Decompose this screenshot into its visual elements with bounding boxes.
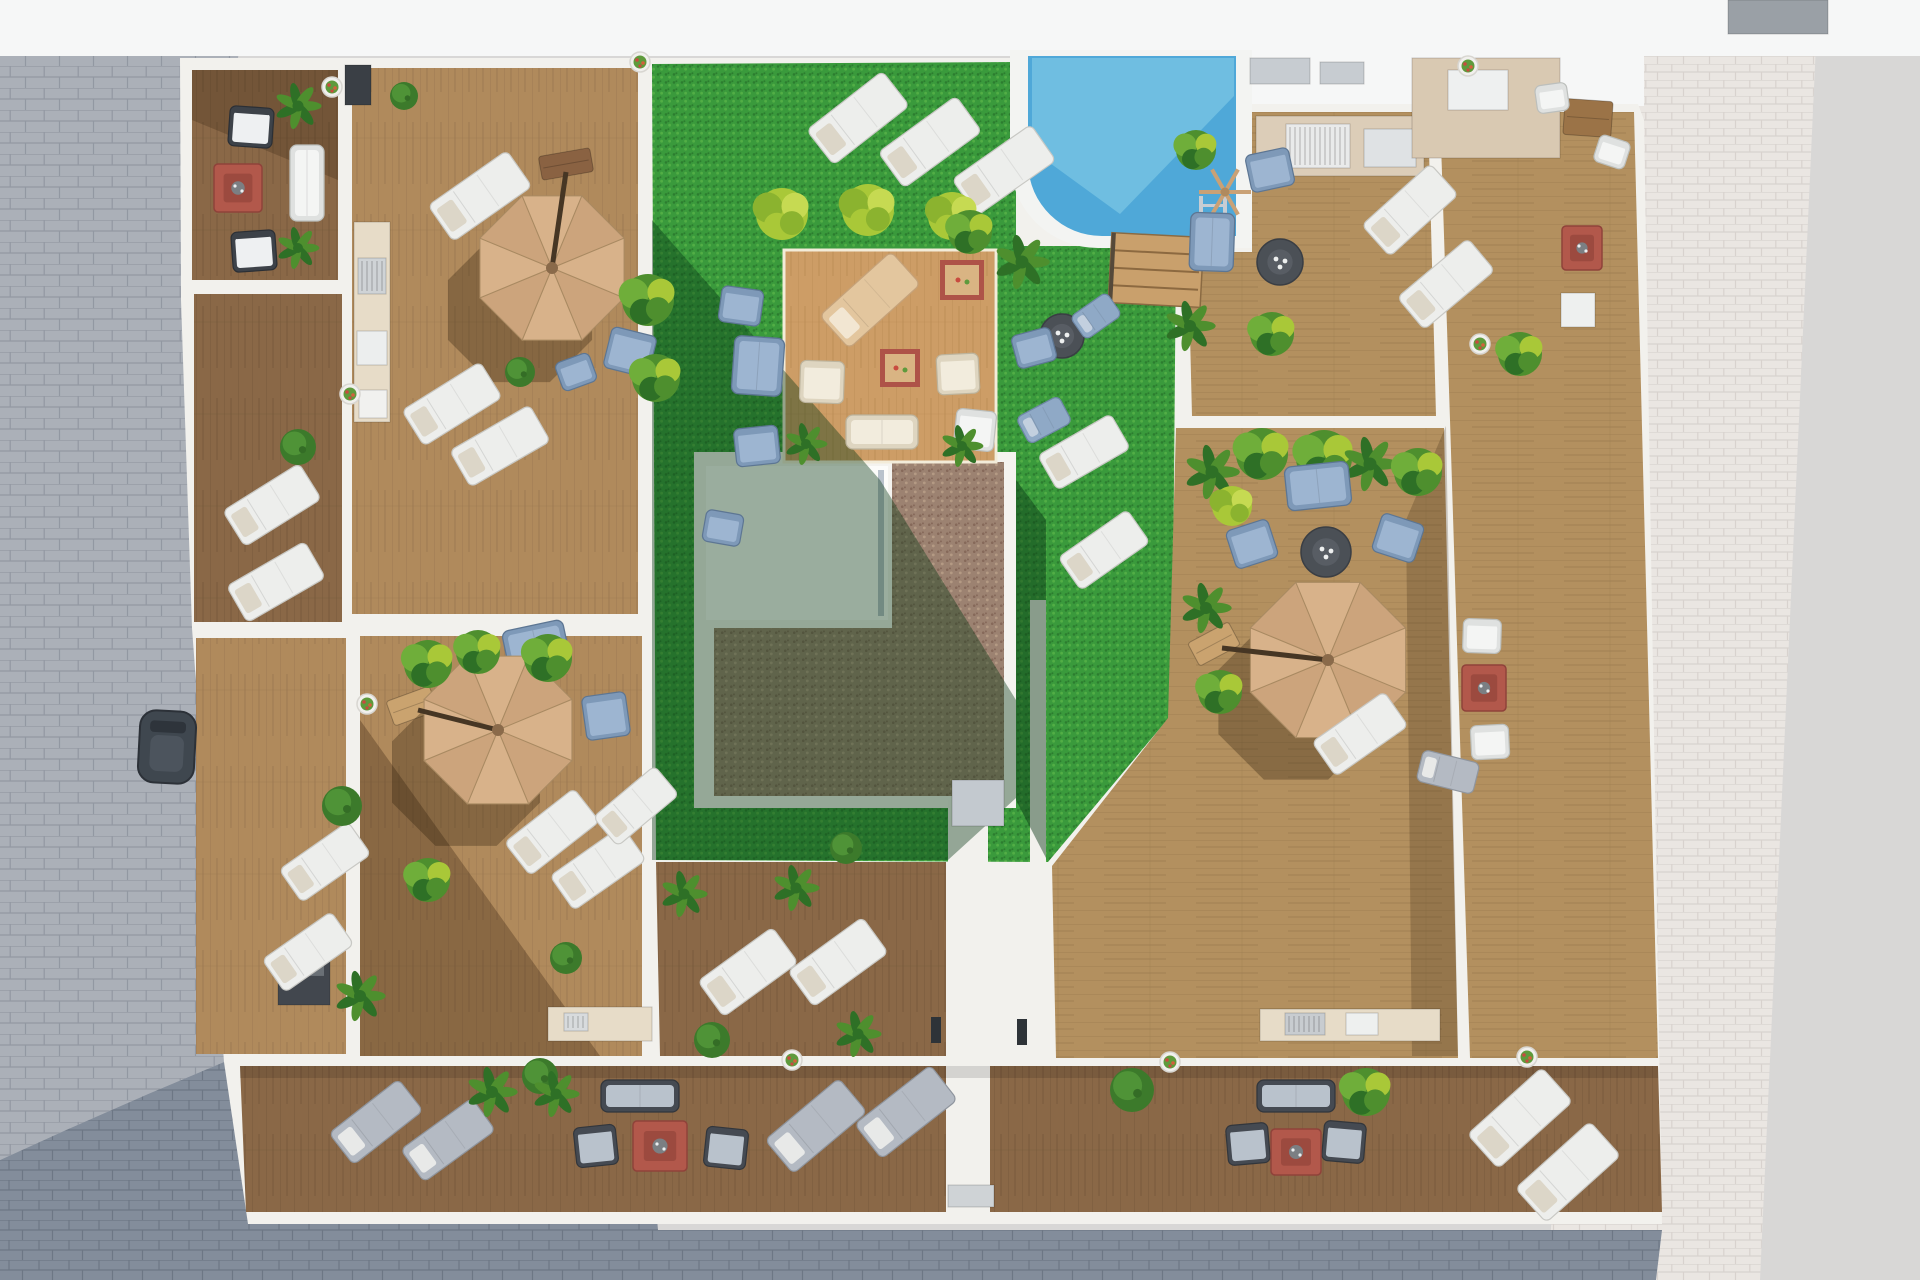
wicker-armchair — [718, 285, 765, 326]
armchair — [581, 691, 631, 741]
balcony-sink — [564, 1013, 588, 1031]
fire-table — [214, 164, 262, 212]
fire-table — [1271, 1129, 1321, 1175]
parked-car — [137, 710, 197, 785]
lounge-chair — [1470, 724, 1510, 760]
armchair — [1321, 1120, 1366, 1164]
dining-table — [1563, 98, 1613, 137]
wicker-armchair — [702, 509, 745, 547]
corner-roof-box — [1448, 70, 1508, 110]
counter-box — [359, 390, 387, 418]
aerial-render-stage: Aerial 3D render — rooftop terraces with… — [0, 0, 1920, 1280]
armchair — [703, 1126, 749, 1170]
counter-sink — [357, 331, 387, 365]
lounge-chair — [799, 360, 844, 404]
flower-pot — [1458, 56, 1478, 76]
flower-pot — [782, 1050, 802, 1070]
flower-pot — [1160, 1052, 1180, 1072]
boxwood-ball — [1110, 1068, 1154, 1112]
armchair — [231, 230, 278, 273]
coffee-table — [880, 349, 920, 387]
skylight — [1286, 124, 1350, 168]
fire-table — [1462, 665, 1506, 711]
core-shadow-on-grass — [1016, 480, 1046, 858]
flower-pot — [340, 384, 360, 404]
roof-vent — [1320, 62, 1364, 84]
sofa — [1284, 461, 1352, 511]
fire-table — [1562, 226, 1602, 270]
boxwood-ball — [505, 357, 535, 387]
grill-unit — [345, 65, 371, 105]
flower-pot — [630, 52, 650, 72]
neighbor-roof — [1728, 0, 1828, 34]
wicker-sofa — [731, 335, 785, 396]
sofa — [1257, 1080, 1335, 1112]
boxwood-ball — [550, 942, 582, 974]
counter-appliance — [358, 258, 386, 294]
scene-svg — [0, 0, 1920, 1280]
sofa — [846, 415, 918, 449]
lounge-chair — [1462, 618, 1501, 653]
boxwood-ball — [694, 1022, 730, 1058]
fire-bowl-table — [1301, 527, 1351, 577]
wicker-armchair — [733, 425, 781, 467]
side-table — [940, 260, 984, 300]
lounge-chair — [936, 353, 980, 395]
balcony-step — [948, 1185, 994, 1207]
balcony-grill — [1285, 1013, 1325, 1035]
roof-vent — [1250, 58, 1310, 84]
armchair — [1245, 147, 1296, 193]
flower-pot — [1517, 1047, 1537, 1067]
armchair — [1225, 1122, 1270, 1166]
balcony-box — [1346, 1013, 1378, 1035]
balcony-wall-shadow — [240, 1066, 1658, 1078]
path-lamp — [931, 1017, 941, 1043]
sofa — [1189, 212, 1235, 272]
sofa — [290, 145, 324, 221]
flower-pot — [322, 77, 342, 97]
boxwood-ball — [830, 832, 862, 864]
round-table — [1257, 239, 1303, 285]
boxwood-ball — [390, 82, 418, 110]
armchair — [228, 106, 275, 149]
flower-pot — [357, 694, 377, 714]
boxwood-ball — [322, 786, 362, 826]
utility-box-core — [952, 780, 1004, 826]
flower-pot — [1470, 334, 1490, 354]
skylight — [1364, 129, 1416, 167]
path-lamp — [1017, 1019, 1027, 1045]
dining-chair — [1534, 82, 1570, 114]
boxwood-ball — [280, 429, 316, 465]
fire-table — [633, 1121, 687, 1171]
armchair — [573, 1124, 619, 1168]
storage-box — [1561, 293, 1595, 327]
sofa — [601, 1080, 679, 1112]
